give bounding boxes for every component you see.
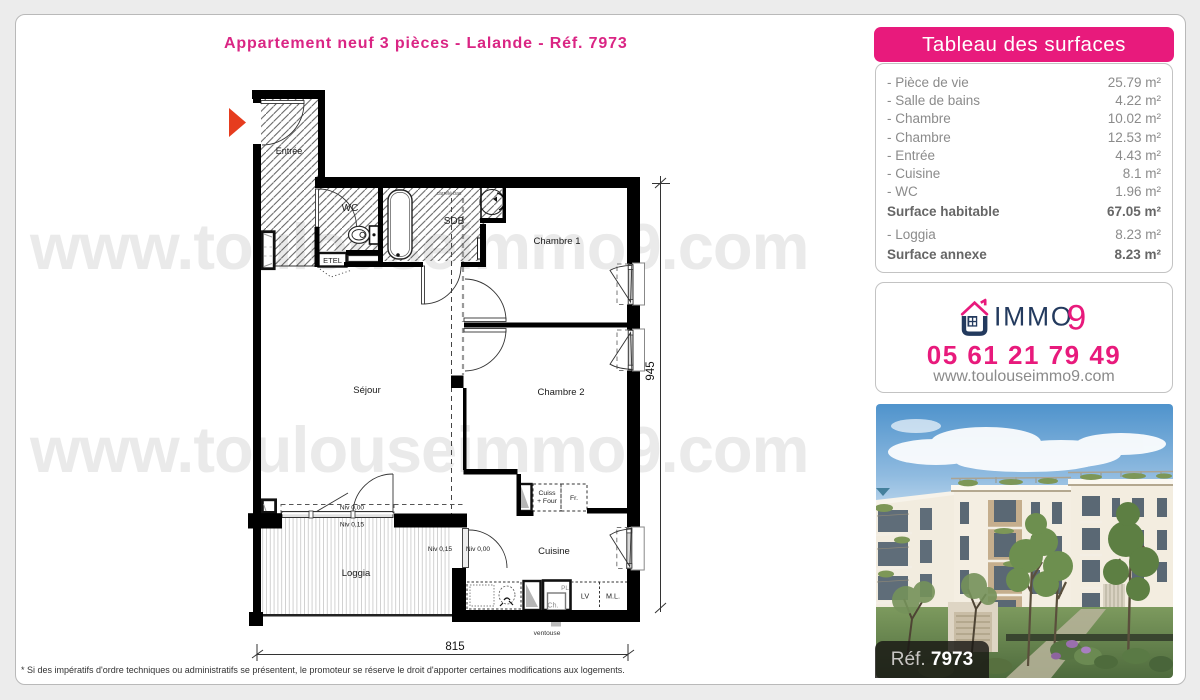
svg-text:945: 945	[645, 361, 657, 380]
svg-text:Fr.: Fr.	[570, 495, 578, 502]
svg-text:ETEL: ETEL	[323, 256, 342, 265]
svg-text:+ Four: + Four	[537, 498, 558, 505]
svg-text:Cuisine: Cuisine	[538, 546, 570, 557]
svg-text:M.L.: M.L.	[606, 592, 620, 601]
svg-text:Loggia: Loggia	[342, 568, 371, 579]
svg-text:WC: WC	[342, 203, 359, 214]
svg-text:Niv 0,15: Niv 0,15	[340, 522, 365, 529]
svg-text:Entrée: Entrée	[276, 146, 303, 156]
svg-text:Cuiss: Cuiss	[539, 490, 557, 497]
svg-text:ventouse: ventouse	[534, 630, 561, 637]
svg-text:Chambre 1: Chambre 1	[534, 236, 581, 247]
svg-text:PL: PL	[561, 585, 569, 592]
svg-text:Chambre 2: Chambre 2	[538, 387, 585, 398]
svg-text:LV: LV	[581, 592, 589, 601]
svg-text:Ch.: Ch.	[548, 603, 559, 610]
svg-text:carrelé bas: carrelé bas	[437, 191, 462, 197]
svg-text:815: 815	[445, 641, 464, 653]
svg-text:Niv 0,00: Niv 0,00	[340, 505, 365, 512]
svg-text:Séjour: Séjour	[353, 385, 380, 396]
svg-text:Niv 0,00: Niv 0,00	[466, 546, 491, 553]
svg-text:Niv 0,15: Niv 0,15	[428, 546, 453, 553]
svg-text:SDB: SDB	[444, 216, 465, 227]
